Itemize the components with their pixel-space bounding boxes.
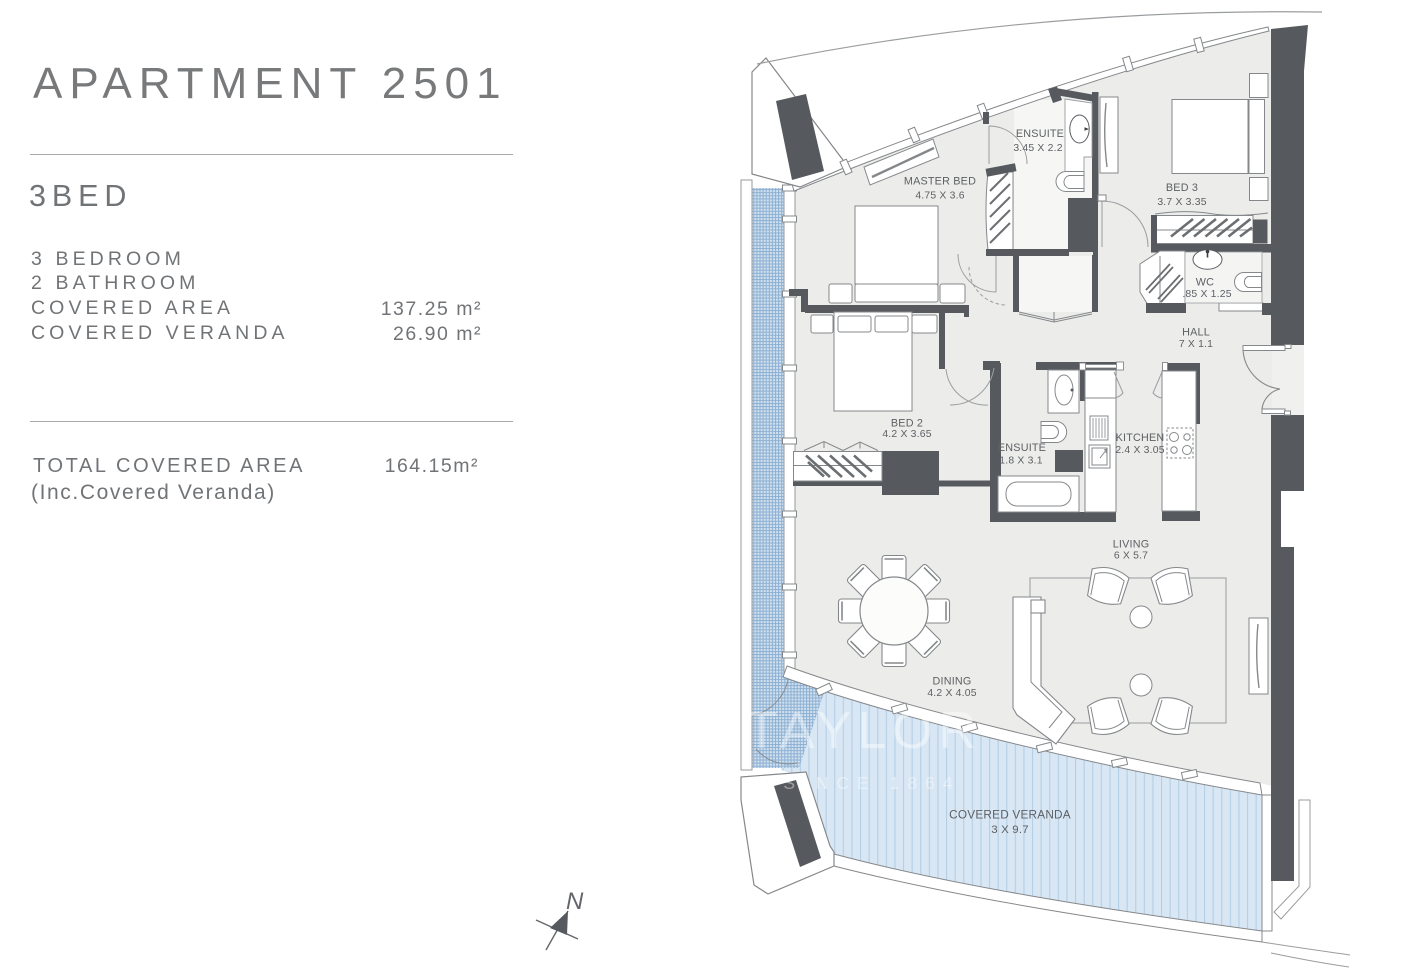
svg-text:TAYLOR: TAYLOR	[746, 702, 982, 760]
svg-text:MASTER BED: MASTER BED	[904, 176, 976, 188]
svg-text:4.75 X 3.6: 4.75 X 3.6	[915, 191, 964, 202]
svg-text:2.4 X 3.05: 2.4 X 3.05	[1115, 445, 1164, 456]
svg-text:4.2 X 4.05: 4.2 X 4.05	[927, 688, 976, 699]
svg-text:.85 X 1.25: .85 X 1.25	[1182, 289, 1231, 300]
svg-text:3.45 X 2.2: 3.45 X 2.2	[1013, 143, 1062, 154]
svg-text:COVERED VERANDA: COVERED VERANDA	[949, 808, 1071, 822]
svg-text:KITCHEN: KITCHEN	[1116, 432, 1165, 444]
svg-text:HALL: HALL	[1182, 327, 1210, 339]
svg-text:BED 3: BED 3	[1166, 182, 1198, 194]
svg-text:3 X 9.7: 3 X 9.7	[991, 824, 1029, 836]
svg-text:WC: WC	[1196, 277, 1214, 289]
svg-text:7 X 1.1: 7 X 1.1	[1179, 339, 1213, 350]
svg-text:LIVING: LIVING	[1113, 539, 1150, 551]
svg-text:ENSUITE: ENSUITE	[1016, 128, 1064, 140]
svg-text:SINCE 1864: SINCE 1864	[783, 773, 960, 793]
svg-text:DINING: DINING	[933, 676, 972, 688]
svg-text:ENSUITE: ENSUITE	[998, 442, 1046, 454]
svg-text:3.7 X 3.35: 3.7 X 3.35	[1157, 197, 1206, 208]
svg-text:6 X 5.7: 6 X 5.7	[1114, 551, 1148, 562]
svg-text:BED 2: BED 2	[891, 418, 923, 430]
svg-text:N: N	[566, 888, 584, 915]
svg-text:4.2 X 3.65: 4.2 X 3.65	[882, 429, 931, 440]
svg-text:1.8 X 3.1: 1.8 X 3.1	[999, 456, 1042, 467]
